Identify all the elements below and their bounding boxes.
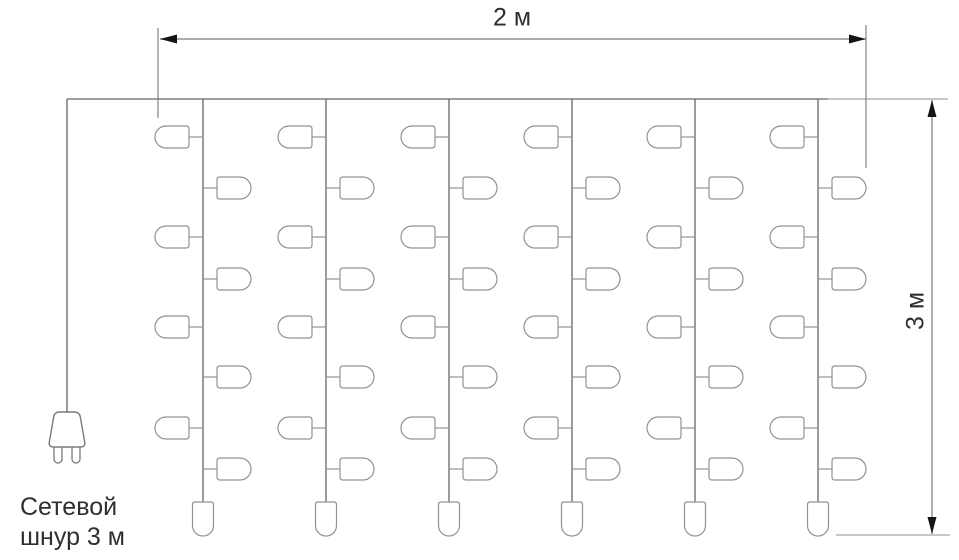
light-string bbox=[524, 99, 620, 536]
led-bulb bbox=[709, 177, 743, 199]
light-string bbox=[155, 99, 251, 536]
led-bulb bbox=[278, 226, 312, 248]
led-bulb bbox=[340, 268, 374, 290]
led-bulb bbox=[647, 316, 681, 338]
width-dimension-label: 2 м bbox=[493, 4, 531, 33]
led-bulb bbox=[832, 458, 866, 480]
led-bulb bbox=[709, 268, 743, 290]
led-bulb bbox=[586, 366, 620, 388]
led-bulb bbox=[217, 268, 251, 290]
led-bulb bbox=[401, 126, 435, 148]
plug-prong bbox=[72, 446, 80, 463]
light-string bbox=[401, 99, 497, 536]
led-bulb bbox=[463, 177, 497, 199]
diagram-canvas: 2 м 3 м Сетевой шнур 3 м bbox=[0, 0, 959, 560]
plug-prong bbox=[54, 446, 62, 463]
led-bulb bbox=[463, 458, 497, 480]
led-bulb bbox=[647, 417, 681, 439]
plug-body bbox=[49, 412, 85, 447]
height-arrowhead-top bbox=[928, 100, 937, 117]
height-dimension-label: 3 м bbox=[902, 292, 931, 330]
light-string bbox=[278, 99, 374, 536]
led-bulb bbox=[832, 268, 866, 290]
led-bulb bbox=[586, 177, 620, 199]
light-string bbox=[647, 99, 743, 536]
width-arrowhead-left bbox=[160, 35, 177, 44]
led-bulb bbox=[586, 458, 620, 480]
led-bulb bbox=[401, 316, 435, 338]
led-bulb bbox=[463, 268, 497, 290]
curtain-diagram-svg bbox=[0, 0, 959, 560]
led-bulb bbox=[770, 417, 804, 439]
height-arrowhead-bottom bbox=[928, 517, 937, 534]
led-bulb bbox=[439, 502, 460, 536]
led-bulb bbox=[217, 177, 251, 199]
led-bulb bbox=[685, 502, 706, 536]
led-bulb bbox=[155, 417, 189, 439]
led-bulb bbox=[647, 126, 681, 148]
led-bulb bbox=[155, 316, 189, 338]
led-bulb bbox=[524, 417, 558, 439]
led-bulb bbox=[832, 366, 866, 388]
led-bulb bbox=[401, 417, 435, 439]
led-bulb bbox=[155, 226, 189, 248]
led-bulb bbox=[524, 126, 558, 148]
power-cord-label-line2: шнур 3 м bbox=[20, 522, 125, 552]
led-bulb bbox=[217, 458, 251, 480]
power-cord-label: Сетевой шнур 3 м bbox=[20, 492, 125, 552]
led-bulb bbox=[463, 366, 497, 388]
led-bulb bbox=[647, 226, 681, 248]
led-bulb bbox=[340, 458, 374, 480]
led-bulb bbox=[278, 417, 312, 439]
led-bulb bbox=[316, 502, 337, 536]
led-bulb bbox=[217, 366, 251, 388]
light-string bbox=[770, 99, 866, 536]
power-plug-icon bbox=[49, 412, 85, 463]
led-bulb bbox=[832, 177, 866, 199]
led-bulb bbox=[562, 502, 583, 536]
power-cord-label-line1: Сетевой bbox=[20, 492, 125, 522]
led-bulb bbox=[524, 316, 558, 338]
led-bulb bbox=[709, 458, 743, 480]
led-bulb bbox=[524, 226, 558, 248]
led-bulb bbox=[401, 226, 435, 248]
led-bulb bbox=[340, 366, 374, 388]
led-bulb bbox=[193, 502, 214, 536]
led-bulb bbox=[278, 126, 312, 148]
led-bulb bbox=[709, 366, 743, 388]
led-bulb bbox=[586, 268, 620, 290]
led-bulb bbox=[808, 502, 829, 536]
led-bulb bbox=[770, 226, 804, 248]
led-bulb bbox=[770, 126, 804, 148]
led-bulb bbox=[278, 316, 312, 338]
width-arrowhead-right bbox=[849, 35, 866, 44]
led-bulb bbox=[340, 177, 374, 199]
led-bulb bbox=[770, 316, 804, 338]
led-bulb bbox=[155, 126, 189, 148]
